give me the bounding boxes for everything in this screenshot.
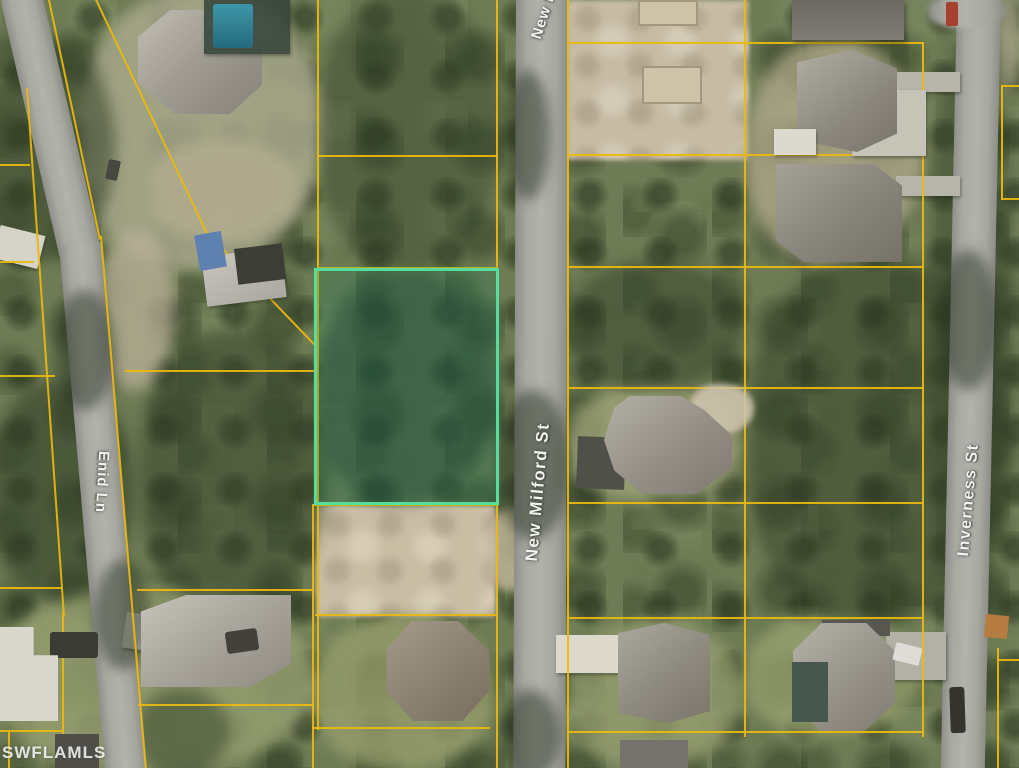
dark-car-inverness [949,687,966,733]
foundation-outline-top [638,0,698,26]
parcel-line [1001,198,1019,200]
parcel-line [125,370,318,372]
house-bottom-left-big [141,595,291,687]
parcel-line [312,727,490,729]
foundation-outline-mid [642,66,702,104]
aerial-map: New M New Milford St Enid Ln Inverness S… [0,0,1019,768]
house-bottom-mid [387,621,489,721]
trailer-dark-roof [234,243,286,285]
dirt-lot-mid [316,505,496,617]
parcel-line [567,42,924,44]
parcel-line [567,266,924,268]
parcel-line [0,587,62,589]
house-east-top-partial [792,0,904,40]
parcel-line [1001,85,1019,87]
tree-shadow [938,250,998,390]
parcel-line [567,0,569,768]
parcel-line [1001,85,1003,200]
parcel-line [567,387,924,389]
house-east-2 [776,164,902,262]
parcel-line [567,731,924,733]
orange-shed [984,614,1009,639]
highlighted-parcel [314,268,499,505]
parked-cars-dark [50,632,98,658]
forest-center-west [140,330,330,610]
shed-east [774,129,816,155]
forest-bottom-left [135,690,230,768]
parcel-line [997,648,999,768]
parcel-line [567,617,924,619]
forest-center-lots [318,0,503,270]
parcel-line [0,261,34,263]
driveway-east-2 [896,176,960,196]
parcel-line [744,0,746,737]
pool-screen-bottom-right [792,662,828,722]
parcel-line [0,164,30,166]
parcel-line [137,589,313,591]
red-car-inverness [946,2,958,26]
parcel-line [315,614,497,616]
tree-shadow [505,70,550,200]
parked-car-dark-2 [225,628,260,654]
pool [213,4,253,48]
watermark: SWFLAMLS [2,743,106,763]
house-bottom-edge-partial [620,740,688,768]
parcel-line [567,502,924,504]
parcel-line [997,659,1019,661]
parcel-line [138,704,313,706]
driveway-east-1 [894,72,960,92]
street-label-enid-ln: Enid Ln [92,451,112,514]
parcel-line [317,155,498,157]
forest-east-lot [568,262,746,390]
house-east-bottom [618,623,710,723]
